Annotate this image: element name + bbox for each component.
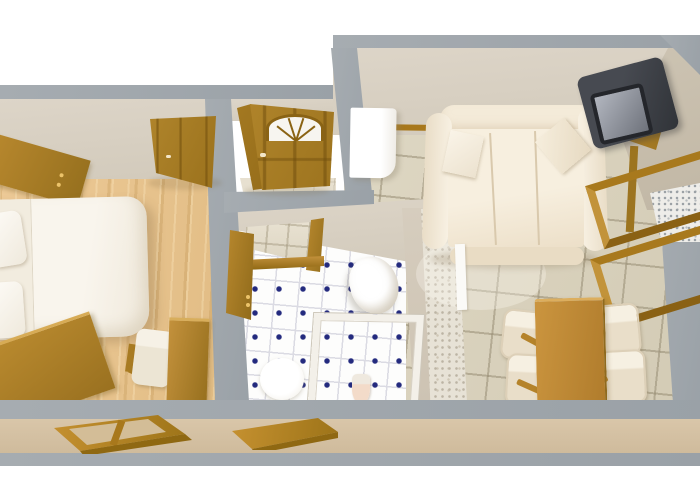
background-margin xyxy=(0,466,700,500)
white-cabinet xyxy=(349,108,396,179)
south-window-bathroom xyxy=(228,416,338,450)
wardrobe-knob xyxy=(59,173,64,178)
entry-door-unit xyxy=(230,98,338,194)
entry-door-handle xyxy=(260,153,266,157)
bed-pillow xyxy=(0,281,26,339)
south-window-bedroom xyxy=(44,412,192,454)
toilet xyxy=(260,358,304,400)
arched-fanlight-window xyxy=(266,114,324,141)
sofa xyxy=(424,103,608,268)
floor-plan-render xyxy=(0,0,700,500)
cabinet-knob xyxy=(246,295,250,299)
bedroom-dresser xyxy=(167,317,210,401)
north-wall-bedroom-hall xyxy=(0,85,333,99)
bathroom-cabinet xyxy=(226,228,254,320)
wardrobe-knob xyxy=(56,182,61,187)
dining-table xyxy=(535,297,608,408)
north-wall-living-room xyxy=(333,35,700,48)
sofa-front-skirt xyxy=(450,247,584,265)
cabinet-knob xyxy=(246,303,250,307)
bedroom-door-handle xyxy=(166,155,171,158)
